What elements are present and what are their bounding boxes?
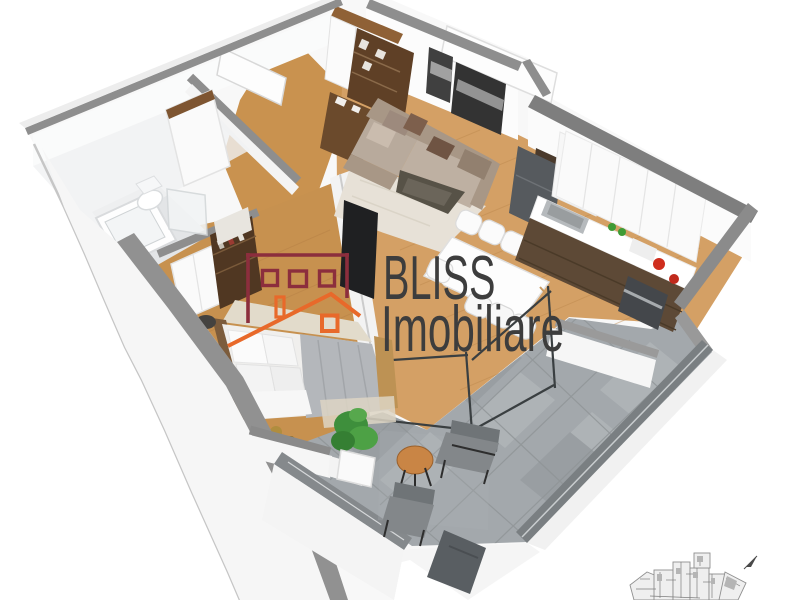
svg-text:Imobiliare: Imobiliare (381, 292, 564, 366)
